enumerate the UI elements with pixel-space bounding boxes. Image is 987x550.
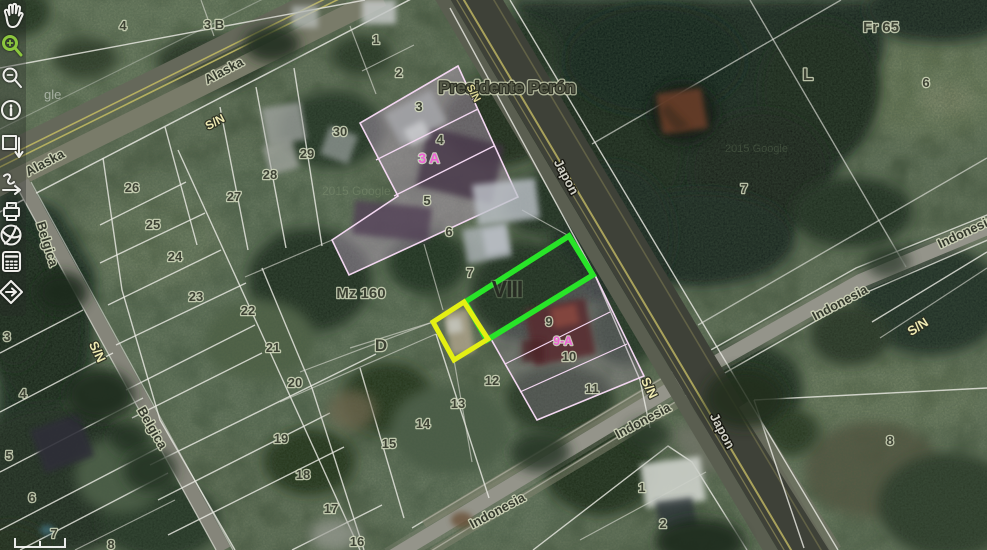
svg-text:17: 17 (324, 501, 338, 516)
svg-text:14: 14 (416, 416, 431, 431)
svg-text:23: 23 (189, 289, 203, 304)
svg-text:2015 Google: 2015 Google (322, 184, 391, 198)
svg-text:2: 2 (659, 516, 666, 531)
svg-text:16: 16 (350, 534, 364, 549)
svg-text:Fr 65: Fr 65 (863, 19, 899, 36)
svg-text:8: 8 (886, 433, 893, 448)
svg-text:7: 7 (50, 526, 57, 541)
svg-text:12: 12 (485, 373, 499, 388)
svg-text:2: 2 (395, 65, 402, 80)
svg-text:3 A: 3 A (418, 150, 439, 166)
svg-text:L: L (803, 65, 813, 84)
svg-text:7: 7 (740, 181, 747, 196)
svg-text:11: 11 (585, 381, 599, 396)
svg-text:4: 4 (119, 18, 127, 33)
svg-text:21: 21 (266, 340, 280, 355)
svg-text:26: 26 (125, 180, 139, 195)
svg-text:6: 6 (28, 490, 35, 505)
svg-text:2015 Google: 2015 Google (725, 143, 788, 155)
svg-text:27: 27 (227, 189, 241, 204)
svg-text:8: 8 (107, 537, 114, 550)
svg-text:10: 10 (562, 349, 576, 364)
svg-text:7: 7 (466, 265, 473, 280)
svg-text:gle: gle (44, 87, 61, 102)
svg-text:24: 24 (168, 249, 183, 264)
svg-text:3 B: 3 B (204, 17, 224, 32)
svg-text:28: 28 (263, 167, 277, 182)
svg-text:5: 5 (423, 193, 430, 208)
svg-text:3: 3 (3, 329, 10, 344)
svg-text:Presidente Perón: Presidente Perón (439, 78, 576, 97)
svg-text:30: 30 (333, 124, 347, 139)
svg-text:25: 25 (146, 217, 160, 232)
svg-text:22: 22 (241, 303, 255, 318)
svg-text:VIII: VIII (492, 276, 523, 302)
svg-text:15: 15 (382, 436, 396, 451)
svg-text:29: 29 (300, 146, 314, 161)
svg-text:20: 20 (288, 375, 302, 390)
svg-text:Mz 160: Mz 160 (336, 285, 385, 302)
svg-text:1: 1 (638, 480, 645, 495)
svg-text:6: 6 (445, 224, 452, 239)
svg-text:1: 1 (372, 32, 379, 47)
svg-text:18: 18 (296, 467, 310, 482)
svg-text:19: 19 (274, 431, 288, 446)
svg-text:4: 4 (436, 132, 444, 147)
svg-text:9-A: 9-A (553, 334, 573, 348)
svg-text:3: 3 (415, 99, 422, 114)
svg-text:9: 9 (545, 314, 552, 329)
svg-text:13: 13 (451, 396, 465, 411)
svg-text:D: D (375, 336, 387, 355)
svg-text:5: 5 (5, 448, 12, 463)
svg-text:4: 4 (19, 386, 27, 401)
svg-text:6: 6 (922, 75, 929, 90)
